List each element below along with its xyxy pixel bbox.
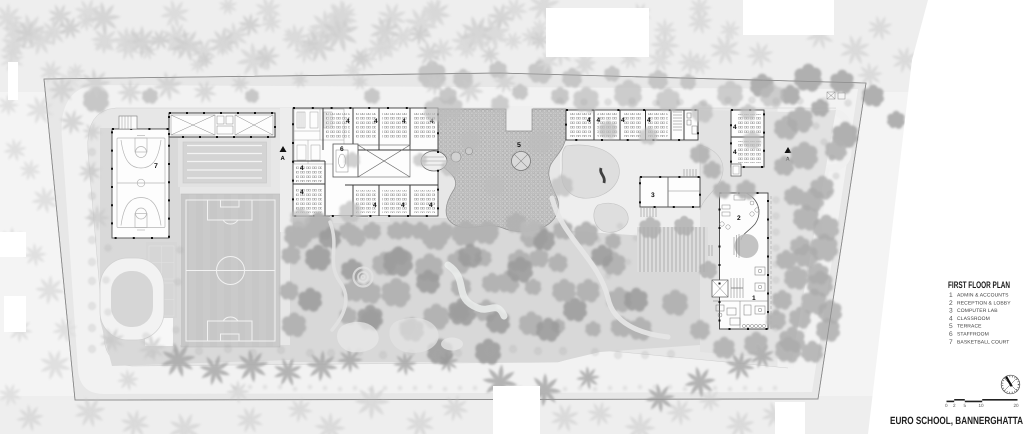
svg-text:0: 0 [945, 403, 948, 408]
svg-text:1: 1 [949, 292, 953, 299]
svg-text:4: 4 [733, 149, 737, 156]
svg-text:STAFFROOM: STAFFROOM [957, 332, 989, 338]
svg-text:4: 4 [429, 202, 433, 209]
svg-text:4: 4 [597, 117, 601, 124]
svg-text:2: 2 [949, 300, 953, 307]
svg-text:4: 4 [949, 315, 953, 322]
svg-text:4: 4 [401, 202, 405, 209]
svg-text:2: 2 [737, 215, 741, 222]
svg-text:4: 4 [621, 117, 625, 124]
svg-text:4: 4 [374, 118, 378, 125]
svg-text:ADMIN & ACCOUNTS: ADMIN & ACCOUNTS [957, 293, 1009, 299]
svg-text:FIRST FLOOR PLAN: FIRST FLOOR PLAN [948, 280, 1010, 291]
svg-text:10: 10 [979, 403, 985, 408]
svg-text:7: 7 [949, 339, 953, 346]
svg-text:3: 3 [949, 308, 953, 315]
svg-text:5: 5 [964, 403, 967, 408]
svg-text:4: 4 [300, 165, 304, 172]
svg-text:7: 7 [154, 163, 158, 170]
svg-text:4: 4 [402, 118, 406, 125]
svg-text:4: 4 [300, 189, 304, 196]
svg-text:TERRACE: TERRACE [957, 324, 982, 330]
svg-text:5: 5 [949, 323, 953, 330]
svg-text:2: 2 [953, 403, 956, 408]
svg-text:CLASSROOM: CLASSROOM [957, 316, 990, 322]
svg-text:A: A [281, 155, 286, 162]
svg-text:4: 4 [733, 124, 737, 131]
svg-text:RECEPTION & LOBBY: RECEPTION & LOBBY [957, 300, 1011, 306]
svg-text:4: 4 [373, 202, 377, 209]
svg-text:4: 4 [587, 117, 591, 124]
svg-text:BASKETBALL COURT: BASKETBALL COURT [957, 339, 1009, 345]
svg-text:4: 4 [647, 117, 651, 124]
svg-text:4: 4 [346, 118, 350, 125]
svg-text:3: 3 [651, 192, 655, 199]
svg-text:6: 6 [340, 146, 344, 153]
svg-text:20: 20 [1014, 403, 1020, 408]
svg-text:5: 5 [517, 142, 521, 149]
svg-text:EURO SCHOOL, BANNERGHATTA: EURO SCHOOL, BANNERGHATTA [890, 415, 1023, 427]
svg-text:6: 6 [949, 331, 953, 338]
svg-text:COMPUTER LAB: COMPUTER LAB [957, 308, 998, 314]
